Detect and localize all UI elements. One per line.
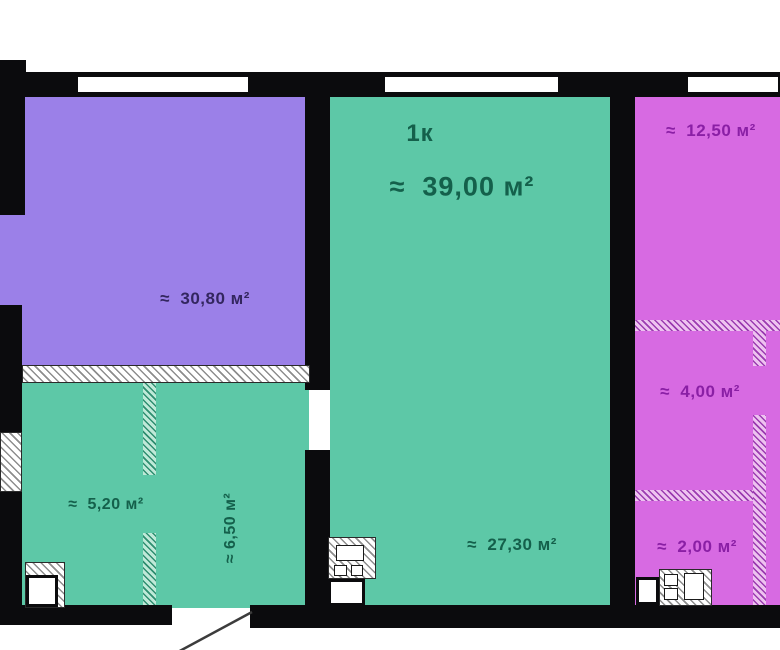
entrance-leader-line — [0, 0, 780, 650]
floor-plan: ≈ 30,80 м² 1к ≈ 39,00 м² ≈ 27,30 м² ≈ 5,… — [0, 0, 780, 650]
